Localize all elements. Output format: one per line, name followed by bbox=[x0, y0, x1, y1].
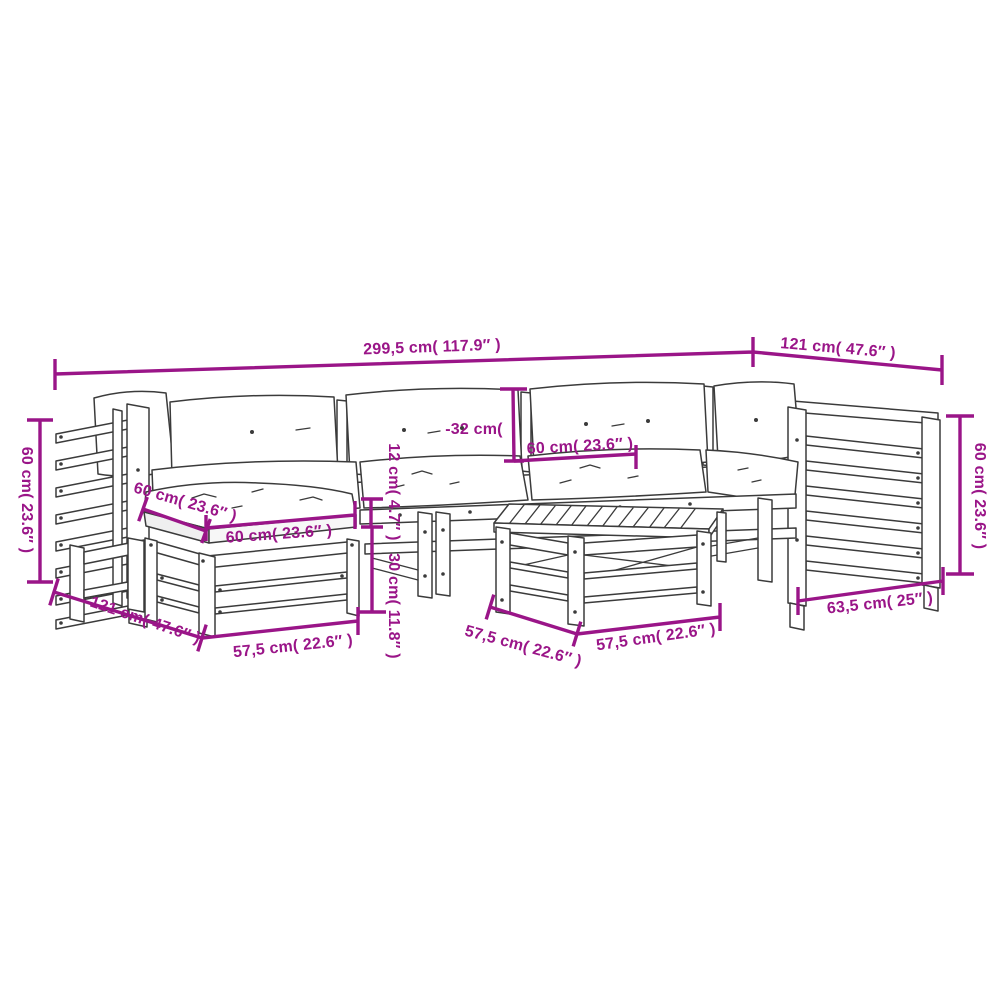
dim-label-back-cushion-height: -32 cm( bbox=[445, 421, 502, 439]
dim-line-seat-height bbox=[359, 527, 386, 612]
dim-label-back-height-right: 60 cm( 23.6″ ) bbox=[970, 443, 988, 550]
dim-label-back-height-left: 60 cm( 23.6″ ) bbox=[17, 447, 35, 554]
dim-label-seat-height: 30 cm( 11.8″ ) bbox=[384, 553, 402, 659]
dim-label-cushion-thickness: 12 cm( 4.7″ ) bbox=[384, 443, 402, 540]
coffee-table bbox=[494, 504, 726, 626]
dimension-diagram: 299,5 cm( 117.9″ ) 121 cm( 47.6″ ) 60 cm… bbox=[0, 0, 1000, 1000]
